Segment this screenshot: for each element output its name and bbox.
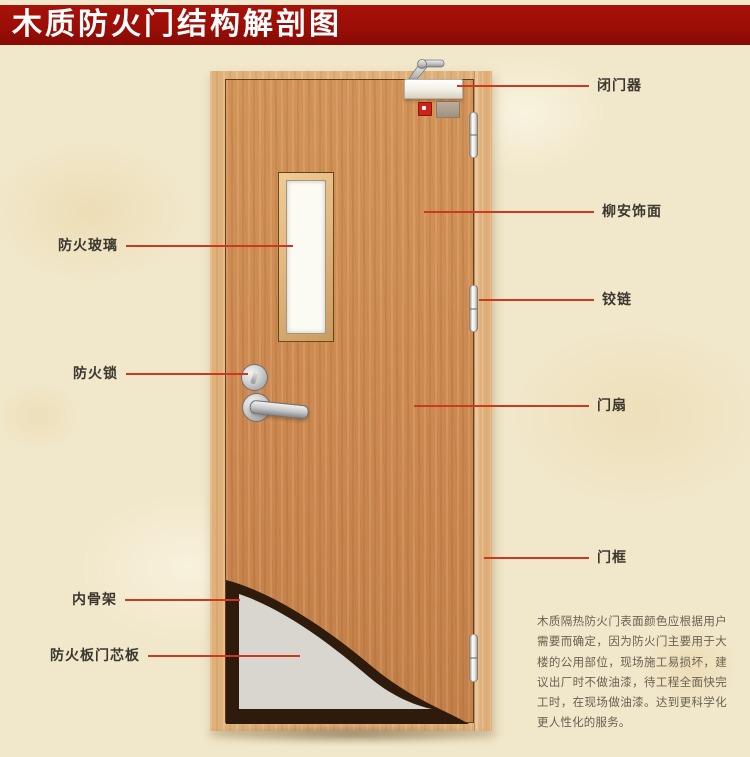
vision-panel-frame	[278, 172, 334, 342]
door-closer-label: 闭门器	[597, 77, 642, 95]
core-board-leader-line	[148, 655, 300, 657]
door-shadow	[200, 724, 505, 744]
hinge-leader-line	[479, 299, 594, 301]
callout-fire-lock: 防火锁	[73, 365, 248, 383]
door-closer-leader-line	[457, 85, 589, 87]
veneer-label: 柳安饰面	[602, 203, 662, 221]
callout-door-closer: 闭门器	[457, 77, 642, 95]
inner-skeleton-label: 内骨架	[72, 591, 117, 609]
inner-skeleton-leader-line	[125, 599, 240, 601]
door-frame-label: 门框	[597, 549, 627, 567]
fire-glass-label: 防火玻璃	[58, 237, 118, 255]
cutaway-graphic	[226, 560, 475, 724]
callout-veneer: 柳安饰面	[424, 203, 662, 221]
door-leaf-label: 门扇	[597, 397, 627, 415]
fire-glass-pane	[286, 180, 326, 334]
veneer-leader-line	[424, 211, 594, 213]
door-closer-body	[404, 79, 463, 99]
product-description: 木质隔热防火门表面颜色应根据用户需要而确定，因为防火门主要用于大楼的公用部位，现…	[537, 611, 727, 733]
door-frame-leader-line	[484, 557, 589, 559]
fire-lock-label: 防火锁	[73, 365, 118, 383]
callout-inner-skeleton: 内骨架	[72, 591, 240, 609]
hinge-bottom	[469, 634, 478, 682]
callout-door-leaf: 门扇	[414, 397, 627, 415]
hinge-top	[469, 112, 478, 158]
hinge-middle	[469, 285, 478, 332]
title-banner: 木质防火门结构解剖图	[0, 5, 750, 45]
door-leaf-leader-line	[414, 405, 589, 407]
fire-lock-leader-line	[126, 373, 248, 375]
alarm-indicator	[418, 102, 432, 116]
callout-door-frame: 门框	[484, 549, 627, 567]
callout-hinge: 铰链	[479, 291, 632, 309]
strike-plate	[436, 101, 460, 118]
core-board-label: 防火板门芯板	[50, 647, 140, 665]
callout-core-board: 防火板门芯板	[50, 647, 300, 665]
callout-fire-glass: 防火玻璃	[58, 237, 293, 255]
infographic-canvas: 木质防火门结构解剖图	[0, 0, 750, 757]
page-title: 木质防火门结构解剖图	[0, 10, 342, 40]
hinge-label: 铰链	[602, 291, 632, 309]
fire-glass-leader-line	[126, 245, 293, 247]
